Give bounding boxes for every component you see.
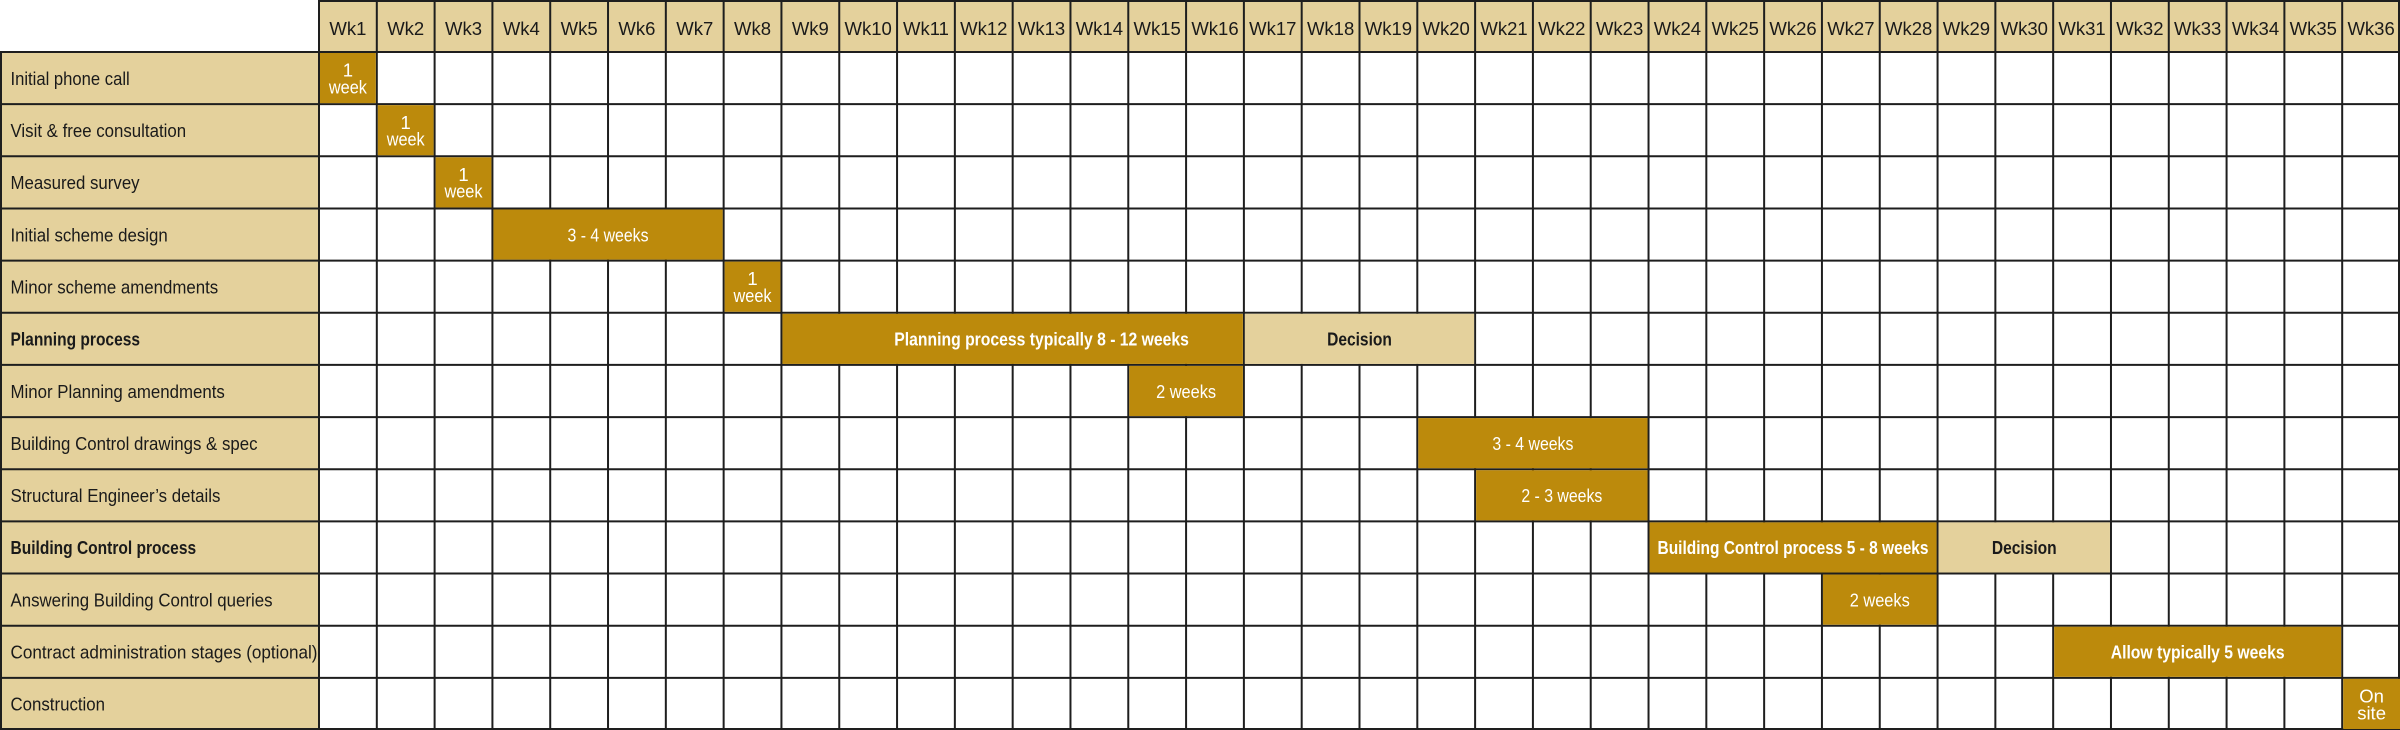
svg-text:Wk22: Wk22 <box>1538 18 1585 39</box>
svg-text:Wk20: Wk20 <box>1423 18 1470 39</box>
svg-text:week: week <box>328 76 368 97</box>
svg-text:Wk21: Wk21 <box>1480 18 1527 39</box>
svg-text:Wk19: Wk19 <box>1365 18 1412 39</box>
svg-text:Wk25: Wk25 <box>1712 18 1759 39</box>
svg-text:Wk6: Wk6 <box>618 18 655 39</box>
svg-text:Building Control drawings & sp: Building Control drawings & spec <box>11 433 258 454</box>
svg-text:Wk32: Wk32 <box>2116 18 2163 39</box>
svg-text:week: week <box>386 129 426 150</box>
svg-text:Wk27: Wk27 <box>1827 18 1874 39</box>
svg-text:Minor scheme amendments: Minor scheme amendments <box>11 276 219 297</box>
svg-text:Wk33: Wk33 <box>2174 18 2221 39</box>
svg-text:Wk31: Wk31 <box>2058 18 2105 39</box>
svg-text:Building Control process 5 - 8: Building Control process 5 - 8 weeks <box>1658 537 1929 558</box>
svg-text:2 weeks: 2 weeks <box>1850 589 1910 610</box>
svg-text:Minor Planning amendments: Minor Planning amendments <box>11 381 225 402</box>
svg-text:Allow typically 5 weeks: Allow typically 5 weeks <box>2111 642 2285 663</box>
svg-text:Wk34: Wk34 <box>2232 18 2279 39</box>
svg-text:Wk1: Wk1 <box>329 18 366 39</box>
svg-text:Wk8: Wk8 <box>734 18 771 39</box>
svg-text:Wk26: Wk26 <box>1769 18 1816 39</box>
svg-text:Wk23: Wk23 <box>1596 18 1643 39</box>
svg-text:Answering Building Control que: Answering Building Control queries <box>11 589 273 610</box>
svg-text:Decision: Decision <box>1992 537 2057 558</box>
svg-text:Wk7: Wk7 <box>676 18 713 39</box>
svg-text:Building Control process: Building Control process <box>11 537 197 558</box>
svg-text:Wk35: Wk35 <box>2290 18 2337 39</box>
svg-text:Wk24: Wk24 <box>1654 18 1701 39</box>
svg-text:Wk17: Wk17 <box>1249 18 1296 39</box>
svg-text:Initial scheme design: Initial scheme design <box>11 224 168 245</box>
svg-text:Wk11: Wk11 <box>903 18 949 39</box>
svg-text:Initial phone call: Initial phone call <box>11 68 130 89</box>
svg-text:2 weeks: 2 weeks <box>1156 381 1216 402</box>
svg-text:Wk13: Wk13 <box>1018 18 1065 39</box>
svg-text:Wk29: Wk29 <box>1943 18 1990 39</box>
svg-text:Contract administration stages: Contract administration stages (optional… <box>11 642 318 663</box>
svg-text:2 - 3 weeks: 2 - 3 weeks <box>1521 485 1602 506</box>
svg-text:Wk36: Wk36 <box>2347 18 2394 39</box>
svg-text:Measured survey: Measured survey <box>11 172 141 193</box>
svg-text:Planning process typically 8 -: Planning process typically 8 - 12 weeks <box>894 329 1189 350</box>
svg-text:week: week <box>444 181 484 202</box>
svg-text:Wk3: Wk3 <box>445 18 482 39</box>
svg-text:Wk28: Wk28 <box>1885 18 1932 39</box>
svg-text:Wk9: Wk9 <box>792 18 829 39</box>
svg-text:week: week <box>733 285 773 306</box>
svg-text:Visit & free consultation: Visit & free consultation <box>11 120 187 141</box>
svg-text:Construction: Construction <box>11 694 106 715</box>
svg-text:Planning process: Planning process <box>11 329 141 350</box>
svg-text:Wk10: Wk10 <box>845 18 892 39</box>
svg-text:Wk14: Wk14 <box>1076 18 1123 39</box>
svg-text:site: site <box>2357 702 2386 723</box>
svg-text:3 - 4 weeks: 3 - 4 weeks <box>1492 433 1573 454</box>
svg-text:Decision: Decision <box>1327 329 1392 350</box>
svg-text:Wk2: Wk2 <box>387 18 424 39</box>
svg-text:Structural Engineer’s details: Structural Engineer’s details <box>11 485 221 506</box>
svg-text:Wk5: Wk5 <box>561 18 598 39</box>
svg-text:Wk15: Wk15 <box>1134 18 1181 39</box>
svg-text:Wk18: Wk18 <box>1307 18 1354 39</box>
svg-text:Wk4: Wk4 <box>503 18 540 39</box>
svg-text:Wk16: Wk16 <box>1191 18 1238 39</box>
svg-text:Wk30: Wk30 <box>2001 18 2048 39</box>
svg-text:3 - 4 weeks: 3 - 4 weeks <box>568 224 649 245</box>
svg-text:Wk12: Wk12 <box>960 18 1007 39</box>
